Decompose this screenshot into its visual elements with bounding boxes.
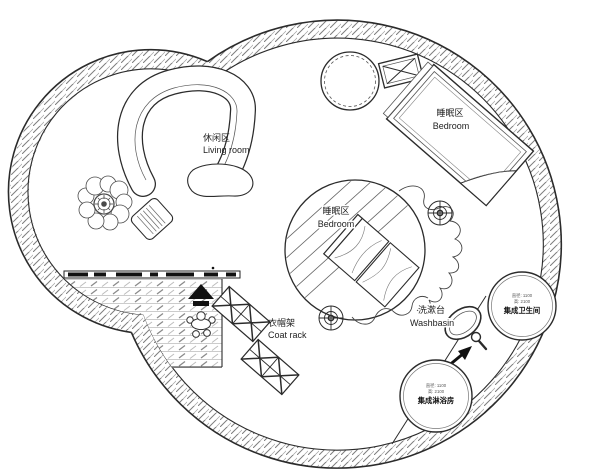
shower-pod: 直径: 1100 高: 2100 集成淋浴房 xyxy=(400,360,472,432)
downlight-symbol-2 xyxy=(319,306,343,330)
bathroom-pod: 直径: 1100 高: 2100 集成卫生间 xyxy=(488,272,556,340)
round-table xyxy=(321,52,379,110)
shower-pod-spec-height: 高: 2100 xyxy=(428,388,445,395)
living-room-label-zh: 休闲区 xyxy=(203,132,230,143)
washbasin-label-en: Washbasin xyxy=(410,318,454,328)
coat-rack-label-en: Coat rack xyxy=(268,330,307,340)
shower-pod-spec-diameter: 直径: 1100 xyxy=(426,382,447,388)
bathroom-pod-spec-height: 高: 2100 xyxy=(514,298,531,305)
bathroom-pod-label: 集成卫生间 xyxy=(503,306,540,315)
bedroom-center-label-zh: 睡眠区 xyxy=(322,205,349,216)
dot-marker xyxy=(212,267,215,270)
floor-plan-canvas: 休闲区 Living room 睡眠区 Bedroom xyxy=(0,0,611,473)
coat-rack-label-zh: 衣帽架 xyxy=(268,317,295,328)
living-room-label-en: Living room xyxy=(203,145,250,155)
bedroom-upper-label-en: Bedroom xyxy=(433,121,470,131)
bathroom-pod-spec-diameter: 直径: 1100 xyxy=(512,292,533,298)
coffee-table xyxy=(188,164,253,196)
shower-pod-label: 集成淋浴房 xyxy=(417,396,454,405)
bedroom-center-label-en: Bedroom xyxy=(318,219,355,229)
window-wall xyxy=(64,271,240,278)
downlight-symbol-1 xyxy=(428,201,452,225)
washbasin-label-zh: 洗漱台 xyxy=(418,304,445,315)
bedroom-upper-label-zh: 睡眠区 xyxy=(436,107,463,118)
